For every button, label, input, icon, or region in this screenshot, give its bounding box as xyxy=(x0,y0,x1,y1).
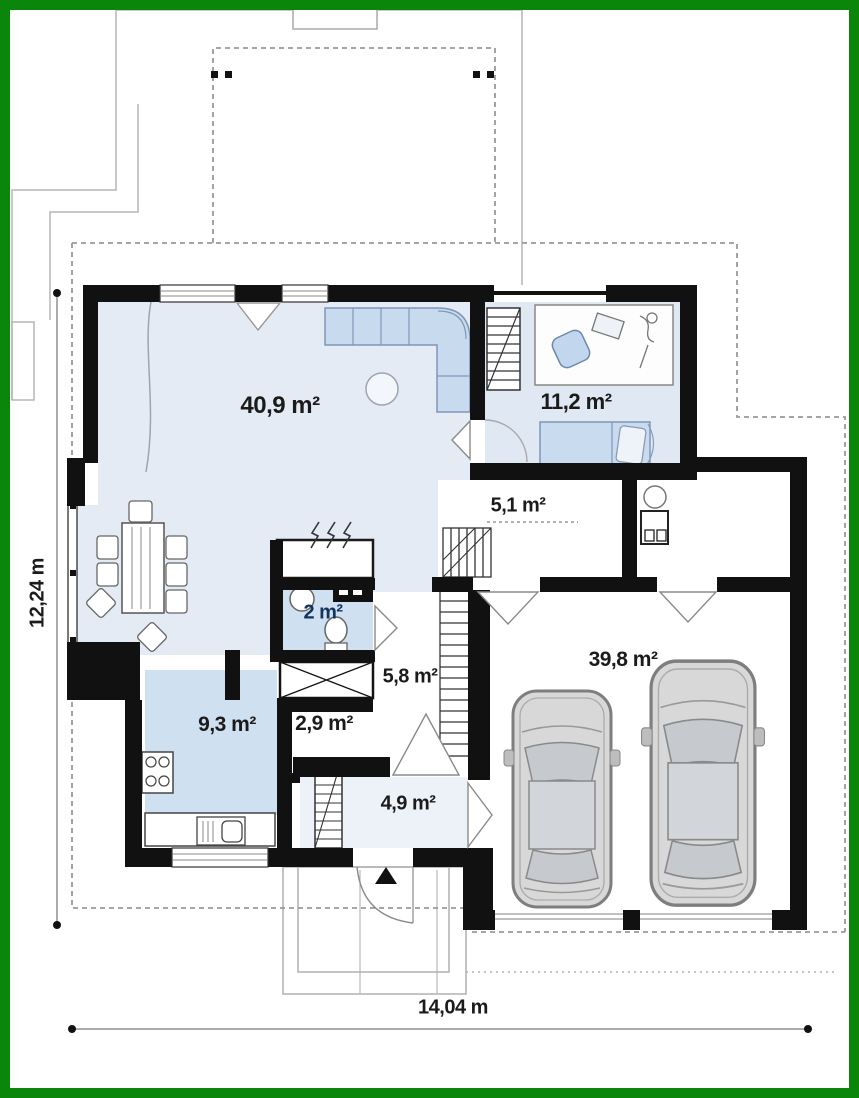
dimension-width-label: 14,04 m xyxy=(418,997,488,1020)
room-label-kitchen: 9,3 m² xyxy=(198,713,256,737)
room-label-garage: 39,8 m² xyxy=(589,648,658,672)
room-label-entry: 4,9 m² xyxy=(381,793,436,816)
round-table-icon xyxy=(366,373,398,405)
roof-dots xyxy=(211,71,494,78)
boiler-icon xyxy=(641,486,668,544)
entrance-arrow-icon xyxy=(375,867,397,884)
floor-plan-drawing xyxy=(10,10,849,1088)
car-icon xyxy=(642,661,765,905)
wardrobe-crossed-icon xyxy=(280,662,373,698)
wc-door xyxy=(375,606,397,650)
room-label-wc: 2 m² xyxy=(303,602,342,625)
room-label-corridor: 2,9 m² xyxy=(295,712,353,736)
chimney-outline xyxy=(293,10,377,29)
tech-garage-door xyxy=(660,592,716,622)
room-label-living-room: 40,9 m² xyxy=(240,392,319,420)
kitchen-sink-icon xyxy=(145,813,275,846)
entry-garage-door xyxy=(468,783,492,847)
room-label-hall: 5,1 m² xyxy=(491,495,546,518)
stove-icon xyxy=(142,752,173,793)
floor-plan-page: 40,9 m² 11,2 m² 5,1 m² 2 m² 5,8 m² 9,3 m… xyxy=(0,0,859,1098)
pillow-icon xyxy=(616,425,647,464)
car-icon xyxy=(504,691,620,907)
bed-icon xyxy=(540,422,654,467)
bedroom-wardrobe-icon xyxy=(487,308,520,390)
room-label-hallway: 5,8 m² xyxy=(383,666,438,689)
desk-icon xyxy=(535,305,673,385)
room-label-bedroom: 11,2 m² xyxy=(540,389,611,415)
dimension-depth-label: 12,24 m xyxy=(27,558,50,628)
